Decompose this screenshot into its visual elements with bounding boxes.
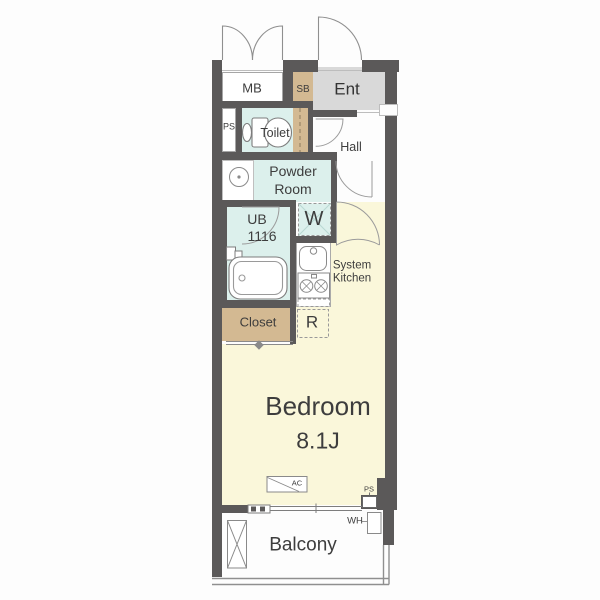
floor-plan: MB SB Ent PS Toilet Hall Powder Room W U… [0, 0, 600, 600]
wall-toilet-bottom [222, 152, 337, 160]
label-shoe-box: SB [296, 85, 309, 95]
wall-balcony-stub [383, 510, 394, 545]
evacuation-hatch [228, 521, 247, 569]
label-bedroom: Bedroom [265, 393, 371, 419]
label-powder-1: Powder [269, 164, 316, 178]
label-bedroom-size: 8.1J [296, 430, 339, 453]
label-refrigerator: R [306, 314, 318, 331]
powder-door-arc [336, 161, 372, 197]
label-powder-2: Room [274, 182, 311, 196]
wall-ps-toilet [236, 108, 242, 152]
wall-closet-right [290, 300, 296, 344]
wall-ub-left [222, 207, 227, 302]
wall-powder-hall [331, 152, 337, 243]
wall-closet-top [212, 300, 296, 308]
wall-ub-top [222, 200, 296, 207]
kitchen-counter [296, 242, 331, 307]
wall-ps-bottom-box [361, 495, 378, 509]
wall-mb-right [283, 72, 293, 102]
wall-row1-bottom [222, 101, 313, 108]
wall-bedroom-bottom [212, 505, 258, 513]
label-hall: Hall [340, 141, 362, 154]
label-meter-box: MB [242, 82, 262, 95]
floor-kitchen [337, 202, 385, 505]
wall-right-main [385, 113, 397, 478]
exterior-notch [379, 104, 398, 116]
toilet-door-arc [316, 119, 343, 146]
label-ac: AC [292, 479, 302, 487]
water-heater [362, 513, 382, 534]
wall-block-bottom-right [377, 478, 397, 510]
label-washer: W [305, 209, 324, 229]
label-water-heater: WH [347, 516, 363, 526]
label-unit-bath-1: UB [247, 212, 266, 226]
wall-ent-bottom [313, 110, 357, 117]
label-unit-bath-2: 1116 [247, 229, 276, 243]
wall-left [212, 60, 222, 577]
label-pipe-space-top: PS [223, 123, 235, 132]
label-closet: Closet [240, 316, 277, 329]
label-kitchen-2: Kitchen [333, 273, 371, 285]
wall-washer-kitchen [296, 236, 337, 243]
entrance-door-arc [319, 17, 362, 60]
label-entrance: Ent [334, 81, 360, 98]
label-pipe-space-bottom: PS [364, 485, 374, 493]
wall-ub-right [290, 207, 296, 302]
toilet-door-strip [293, 106, 308, 152]
label-toilet: Toilet [260, 127, 289, 140]
mb-door-arcs [223, 26, 283, 60]
powder-room-vanity [222, 160, 254, 202]
label-balcony: Balcony [269, 536, 337, 555]
label-kitchen-1: System [333, 260, 371, 272]
wall-top-1 [283, 60, 318, 72]
floor-bedroom [222, 344, 296, 505]
